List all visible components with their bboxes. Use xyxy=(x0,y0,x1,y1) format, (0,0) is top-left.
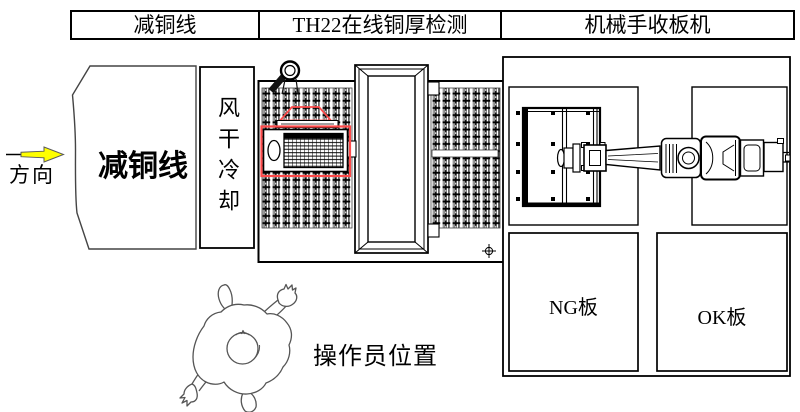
th22-inspection-machine xyxy=(259,62,505,263)
section-header-strip: 减铜线 TH22在线铜厚检测 机械手收板机 xyxy=(70,10,795,40)
conveyor-rollers-right xyxy=(431,88,500,228)
operator-position-label: 操作员位置 xyxy=(313,336,438,371)
air-dry-label: 风干冷却 xyxy=(200,70,254,246)
direction-label: 方向 xyxy=(9,159,55,189)
display-grid xyxy=(284,134,343,168)
header-cell-robot-unloader: 机械手收板机 xyxy=(500,12,793,38)
copper-line-label: 减铜线 xyxy=(90,141,196,185)
operator-figure xyxy=(180,285,297,412)
header-cell-copper-line: 减铜线 xyxy=(72,12,258,38)
header-cell-th22-inspection: TH22在线铜厚检测 xyxy=(258,12,500,38)
ok-board-label: OK板 xyxy=(657,301,787,330)
gantry-frame xyxy=(344,65,439,253)
ng-board-label: NG板 xyxy=(509,291,638,320)
line-layout-diagram: 减铜线 TH22在线铜厚检测 机械手收板机 方向 减铜线 风干冷却 NG板 OK… xyxy=(0,0,800,412)
